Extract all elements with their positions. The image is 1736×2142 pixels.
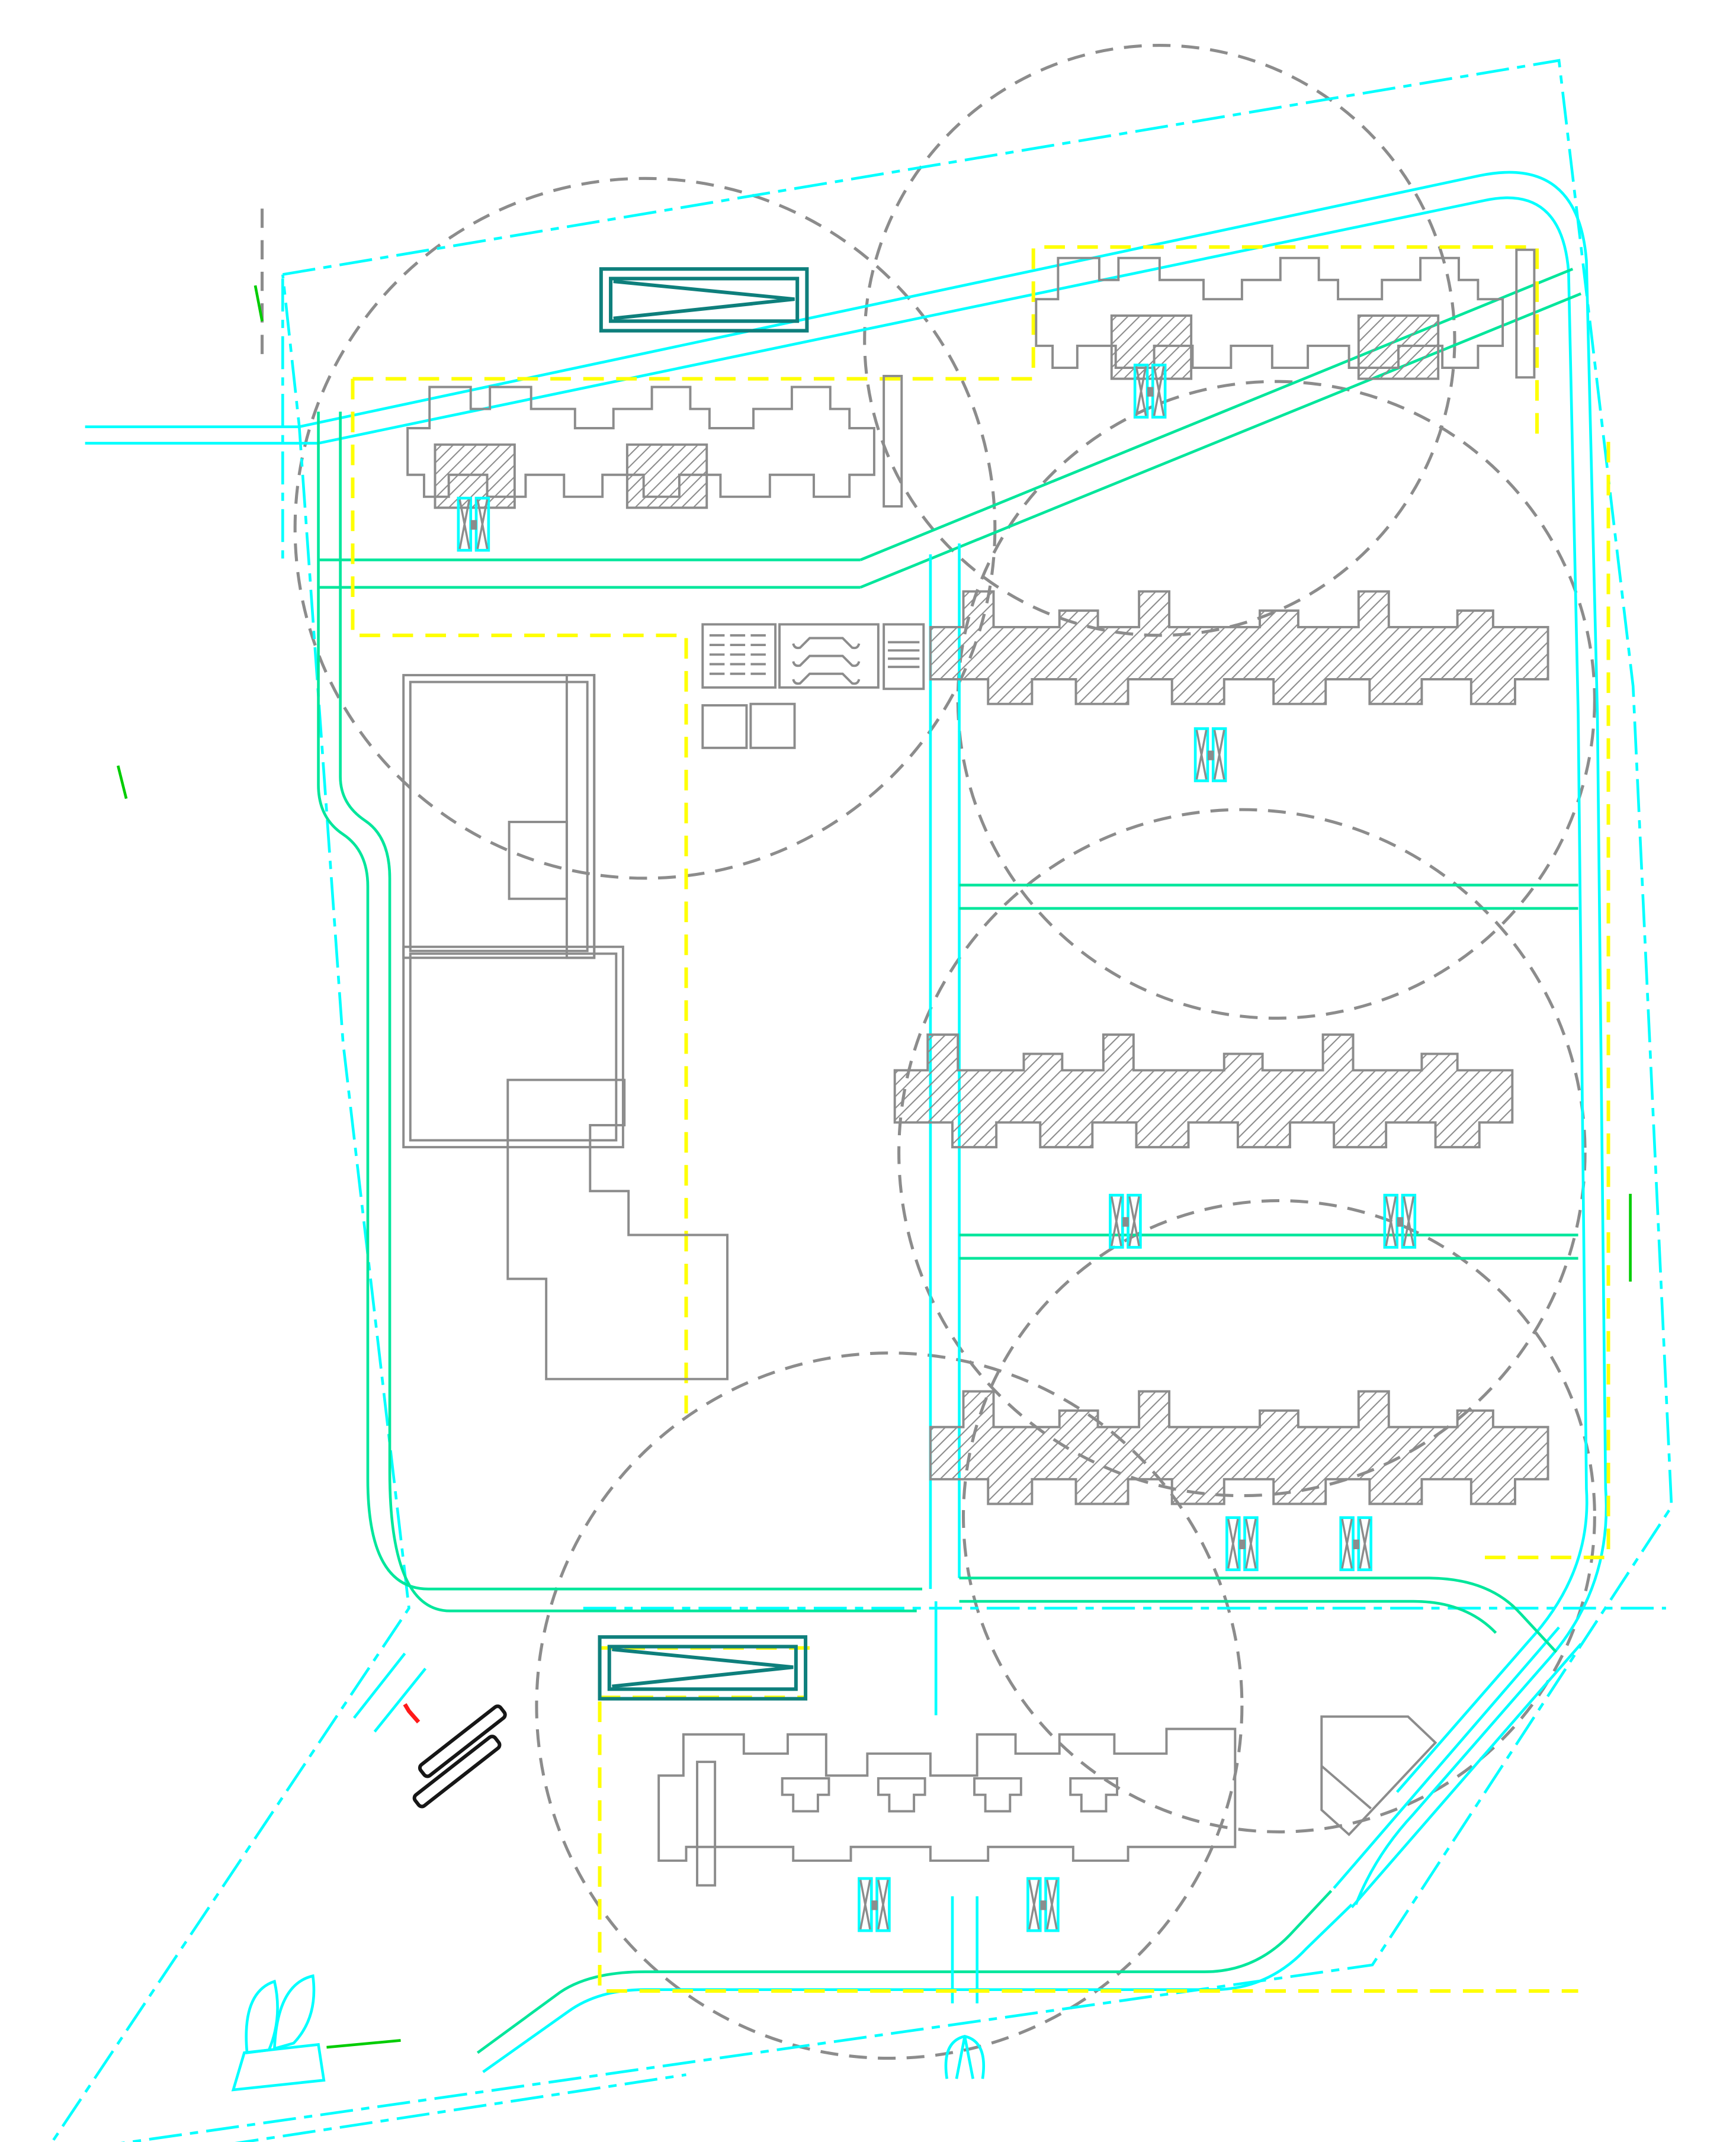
core-hatch	[627, 445, 707, 508]
bench-rows-symbol	[779, 624, 878, 688]
core-hatch	[1359, 316, 1438, 379]
office-block	[508, 1080, 727, 1379]
loop-left-inner	[341, 412, 917, 1611]
gate-bar-black-1	[418, 1704, 506, 1778]
tulip-entry-symbol	[946, 2037, 984, 2079]
parking-rows-symbol	[702, 624, 775, 688]
road-bottom-outer	[483, 1905, 1352, 2072]
green-tick-left-2	[118, 766, 126, 799]
wall-bar	[884, 376, 901, 506]
road-diagonal-1	[861, 269, 1573, 560]
road-top-outer	[85, 172, 1606, 1905]
north-red-tick	[405, 1704, 419, 1722]
garage-ramp-1	[601, 269, 807, 330]
road-top-inner	[85, 198, 1587, 1792]
core-x-marker-3	[1195, 728, 1225, 781]
road-exit-southeast-1	[1352, 1644, 1581, 1907]
building-row1-left	[407, 387, 874, 508]
wall-bar	[697, 1762, 715, 1886]
kindergarten-block	[403, 675, 623, 1147]
garage-ramp-2	[600, 1637, 806, 1698]
road-exit-southwest-1	[354, 1653, 405, 1718]
cell-divider-3a	[960, 1578, 1557, 1652]
amenity-symbols	[702, 624, 923, 748]
boundary-parallel-bottom	[55, 2074, 686, 2142]
gate-bar-black-2	[413, 1735, 501, 1808]
fire-access-circle-4	[899, 810, 1585, 1495]
setback-right	[1482, 442, 1608, 1557]
building-row4	[930, 1392, 1548, 1504]
tree-bed-symbol	[233, 1976, 401, 2090]
gate-bars	[405, 1704, 507, 1808]
core-x-marker-9	[1028, 1878, 1058, 1931]
boundary-pentagon	[1321, 1717, 1435, 1835]
small-rack-symbol	[884, 624, 923, 689]
building-row1-right	[1036, 258, 1503, 379]
building-row2	[930, 592, 1548, 704]
building-bottom	[659, 1729, 1235, 1860]
buildings-layer	[403, 250, 1548, 1886]
site-plan-svg	[0, 0, 1736, 2142]
road-diagonal-2	[861, 294, 1581, 587]
core-x-marker-6	[1227, 1518, 1257, 1570]
building-row3	[895, 1035, 1513, 1147]
core-x-marker-8	[859, 1878, 889, 1931]
core-x-marker-7	[1341, 1518, 1371, 1570]
paving-herringbone	[702, 705, 746, 748]
paving-grid	[750, 704, 794, 748]
road-bottom-inner	[477, 1891, 1331, 2053]
site-plan-canvas	[0, 0, 1736, 2142]
